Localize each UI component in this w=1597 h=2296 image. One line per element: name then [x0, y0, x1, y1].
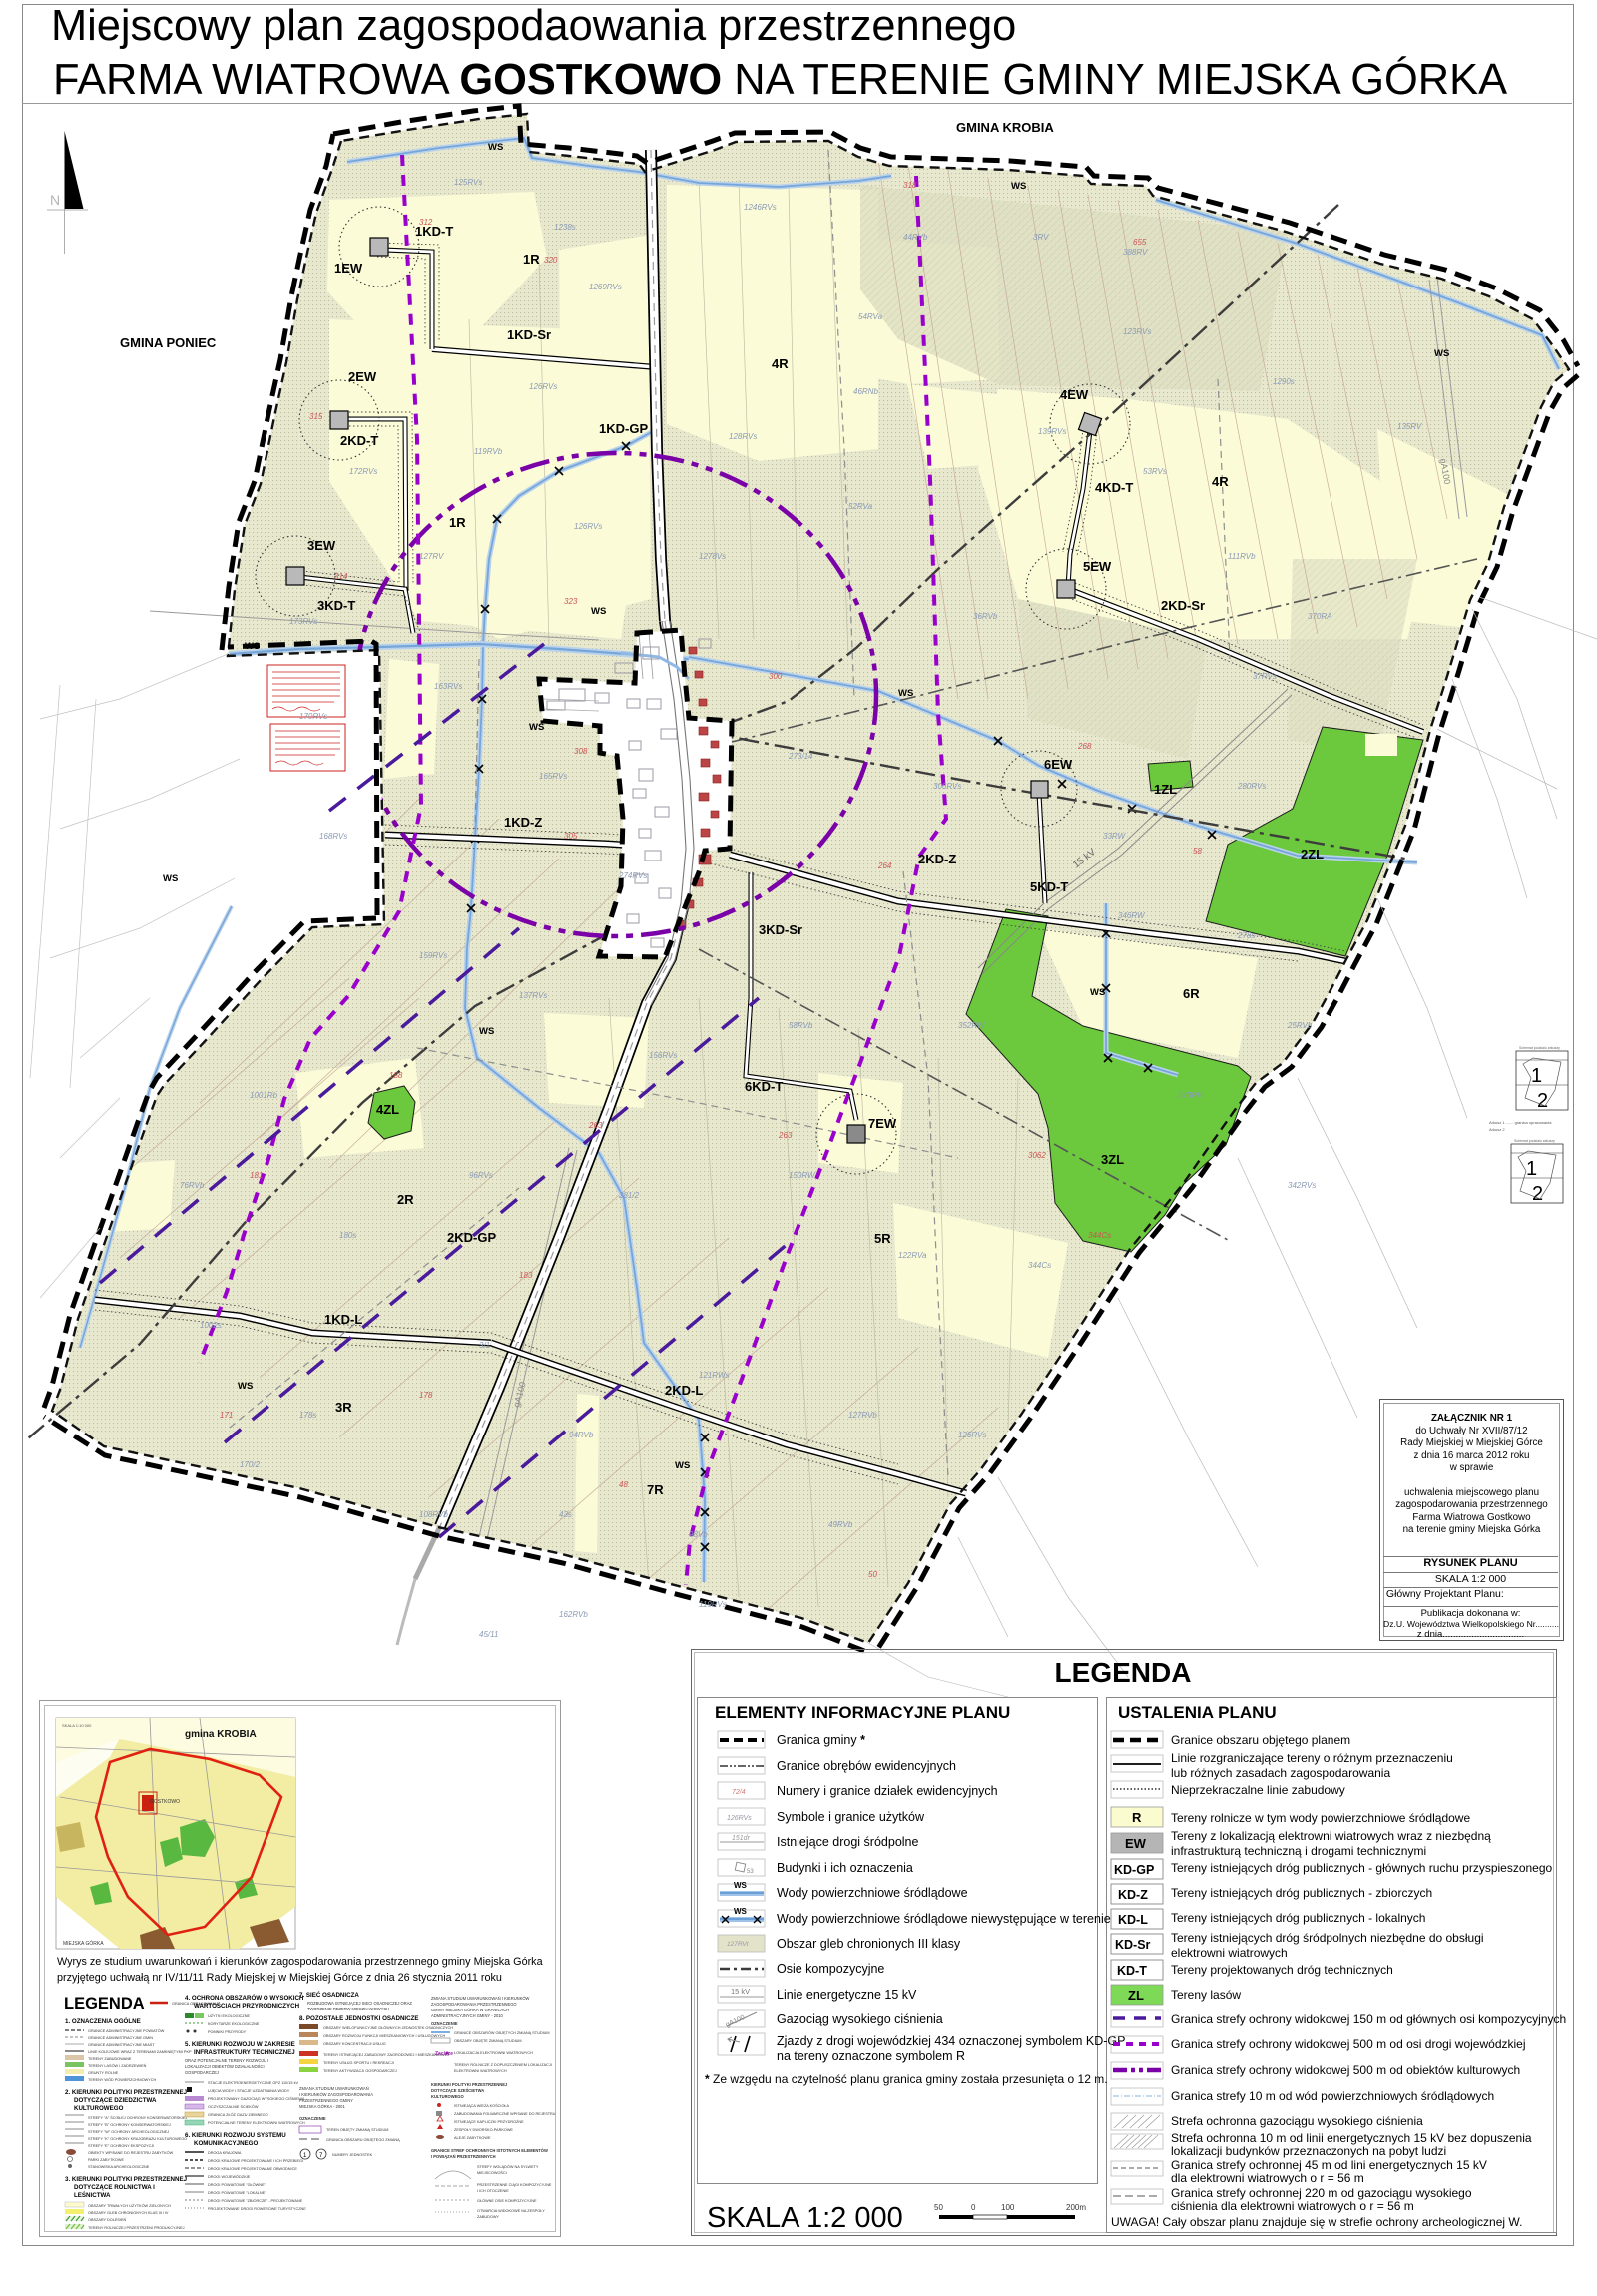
svg-text:PRZESTRZENNEGO GMINY: PRZESTRZENNEGO GMINY [299, 2098, 353, 2103]
svg-text:STREFY WGLĄDÓW NA SYLWETY: STREFY WGLĄDÓW NA SYLWETY [477, 2164, 539, 2169]
svg-text:DROGI WOJEWÓDZKIE: DROGI WOJEWÓDZKIE [208, 2174, 251, 2179]
svg-text:4. OCHRONA OBSZARÓW O WYSOKICH: 4. OCHRONA OBSZARÓW O WYSOKICH [185, 1994, 304, 2002]
svg-text:1. OZNACZENIA OGÓLNE: 1. OZNACZENIA OGÓLNE [65, 2017, 141, 2025]
svg-text:OBSZARY OBJĘTE ZMIANĄ STUDIUM: OBSZARY OBJĘTE ZMIANĄ STUDIUM [454, 2039, 522, 2043]
svg-text:I POWIĄZAŃ PRZESTRZENNYCH: I POWIĄZAŃ PRZESTRZENNYCH [431, 2154, 496, 2159]
svg-text:STREFY "W" OCHRONY ARCHEOLOGIC: STREFY "W" OCHRONY ARCHEOLOGICZNEJ [88, 2130, 169, 2134]
svg-text:OBIEKTY WPISANE DO REJESTRU ZA: OBIEKTY WPISANE DO REJESTRU ZABYTKÓW [88, 2150, 174, 2155]
svg-text:5. KIERUNKI ROZWOJU W ZAKRESIE: 5. KIERUNKI ROZWOJU W ZAKRESIE [185, 2041, 295, 2048]
svg-text:GRANICE STREF OCHRONNYCH ISTOT: GRANICE STREF OCHRONNYCH ISTOTNYCH ELEME… [431, 2148, 548, 2153]
svg-text:ZESPOŁY DWORSKO-PARKOWE: ZESPOŁY DWORSKO-PARKOWE [454, 2128, 513, 2132]
svg-text:OBSZARY KONCENTRACJI USŁUG: OBSZARY KONCENTRACJI USŁUG [323, 2042, 386, 2046]
svg-text:ISTNIEJĄCA WIEŻA KOŚCIOŁA: ISTNIEJĄCA WIEŻA KOŚCIOŁA [454, 2103, 510, 2108]
svg-text:POMNIKI PRZYRODY: POMNIKI PRZYRODY [208, 2030, 247, 2034]
svg-text:ADMINISTRACYJNYCH GMINY - 2010: ADMINISTRACYJNYCH GMINY - 2010 [431, 2013, 504, 2018]
svg-text:WARTOŚCIACH PRZYRODNICZYCH: WARTOŚCIACH PRZYRODNICZYCH [194, 2003, 300, 2009]
svg-text:GŁÓWNE OSIE KOMPOZYCYJNE: GŁÓWNE OSIE KOMPOZYCYJNE [477, 2198, 537, 2203]
svg-text:LINIE KOLEJOWE WRAZ Z TERENAMI: LINIE KOLEJOWE WRAZ Z TERENAMI ZAMKNIĘTY… [88, 2050, 192, 2054]
svg-text:I KIERUNKÓW ZAGOSPODAROWANIA: I KIERUNKÓW ZAGOSPODAROWANIA [299, 2092, 373, 2097]
svg-text:INFRASTRUKTURY TECHNICZNEJ: INFRASTRUKTURY TECHNICZNEJ [194, 2049, 295, 2056]
svg-text:NUMERY JEDNOSTEK: NUMERY JEDNOSTEK [332, 2153, 373, 2157]
svg-text:TERENY LASÓW I ZADRZEWIEŃ: TERENY LASÓW I ZADRZEWIEŃ [88, 2063, 147, 2068]
svg-text:ZMIANA STUDIUM UWARUNKOWAŃ I K: ZMIANA STUDIUM UWARUNKOWAŃ I KIERUNKÓW [431, 1996, 530, 2001]
svg-text:ZAGOSPODAROWANIA PRZESTRZENNEG: ZAGOSPODAROWANIA PRZESTRZENNEGO [431, 2002, 517, 2007]
svg-text:ZABUDOWY: ZABUDOWY [477, 2215, 499, 2219]
svg-text:DROGI POWIATOWE "LOKALNE": DROGI POWIATOWE "LOKALNE" [208, 2191, 266, 2195]
svg-text:KORYTARZE EKOLOGICZNE: KORYTARZE EKOLOGICZNE [208, 2022, 260, 2026]
svg-text:GOSPODARCZEJ: GOSPODARCZEJ [185, 2070, 219, 2075]
svg-text:OBSZARY DOLESIEŃ: OBSZARY DOLESIEŃ [88, 2218, 127, 2222]
svg-text:TERENY ZABUDOWANE: TERENY ZABUDOWANE [88, 2057, 132, 2061]
svg-text:MIEJSCOWOŚCI: MIEJSCOWOŚCI [477, 2170, 507, 2175]
svg-text:PARKI ZABYTKOWE: PARKI ZABYTKOWE [88, 2158, 124, 2162]
svg-text:STREFY "B" OCHRONY KONSERWATOR: STREFY "B" OCHRONY KONSERWATORSKIEJ [88, 2123, 171, 2127]
svg-text:OTWARCIA WIDOKOWE NA ZESPOŁY: OTWARCIA WIDOKOWE NA ZESPOŁY [477, 2209, 545, 2213]
svg-text:TERENY ROLNICZEJ PRZESTRZENI P: TERENY ROLNICZEJ PRZESTRZENI PRODUKCYJNE… [88, 2226, 185, 2230]
svg-text:TERENY ISTNIEJĄCEJ ZABUDOWY ZA: TERENY ISTNIEJĄCEJ ZABUDOWY ZAGRODOWEJ I… [323, 2053, 449, 2057]
svg-text:DOTYCZĄCE DZIEDZICTWA: DOTYCZĄCE DZIEDZICTWA [74, 2097, 157, 2104]
svg-text:GRANICA ZŁÓŻ GAZU ZIEMNEGO: GRANICA ZŁÓŻ GAZU ZIEMNEGO [208, 2112, 268, 2117]
svg-text:TWORZENIE REZERW MIESZKANIOWYC: TWORZENIE REZERW MIESZKANIOWYCH [307, 2007, 389, 2011]
svg-text:OZNACZENIE: OZNACZENIE [431, 2021, 458, 2026]
svg-text:POTENCJALNE TERENY ELEKTROWNI: POTENCJALNE TERENY ELEKTROWNI WIATROWYCH [208, 2121, 305, 2125]
svg-text:STANOWISKA ARCHEOLOGICZNE: STANOWISKA ARCHEOLOGICZNE [88, 2165, 150, 2169]
svg-text:ZABUDOWANIA FOLWARCZNE WPISANE: ZABUDOWANIA FOLWARCZNE WPISANE DO REJEST… [454, 2112, 556, 2116]
svg-text:OCZYSZCZALNIE ŚCIEKÓW: OCZYSZCZALNIE ŚCIEKÓW [208, 2104, 259, 2109]
svg-text:TERENY WÓD POWIERZCHNIOWYCH: TERENY WÓD POWIERZCHNIOWYCH [88, 2077, 157, 2082]
svg-text:OZNACZENIE: OZNACZENIE [299, 2116, 326, 2121]
svg-text:7. SIEĆ OSADNICZA: 7. SIEĆ OSADNICZA [299, 1991, 359, 1999]
svg-text:7: 7 [319, 2153, 323, 2159]
svg-text:UJĘCIA WODY I STACJE UZDATNIAN: UJĘCIA WODY I STACJE UZDATNIANIA WODY [208, 2089, 290, 2093]
svg-text:LOKALIZACJA ELEKTROWNI WIATROW: LOKALIZACJA ELEKTROWNI WIATROWYCH [454, 2051, 533, 2055]
svg-text:GRUNTY ROLNE: GRUNTY ROLNE [88, 2071, 119, 2075]
svg-text:ORAZ POTENCJALNE TERENY ROZWOJ: ORAZ POTENCJALNE TERENY ROZWOJU I [185, 2058, 268, 2063]
svg-text:MIEJSKA GÓRKA - 2001: MIEJSKA GÓRKA - 2001 [299, 2104, 345, 2109]
svg-text:LOKALIZACJI OBIEKTÓW DZIAŁALNO: LOKALIZACJI OBIEKTÓW DZIAŁALNOŚCI [185, 2064, 265, 2069]
svg-text:PROJEKTOWANE DROGI ROWEROWE TU: PROJEKTOWANE DROGI ROWEROWE TURYSTYCZNE [208, 2207, 306, 2211]
svg-text:3. KIERUNKI POLITYKI PRZESTRZE: 3. KIERUNKI POLITYKI PRZESTRZENNEJ [65, 2176, 188, 2183]
svg-text:GRANICE ADMINISTRACYJNE GMIN: GRANICE ADMINISTRACYJNE GMIN [88, 2036, 153, 2040]
svg-text:DROGI POWIATOWE "ZBIORCZE" - P: DROGI POWIATOWE "ZBIORCZE" - PROJEKTOWAN… [208, 2199, 303, 2203]
svg-text:PROJEKTOWANY GAZOCIĄG WYSOKIEG: PROJEKTOWANY GAZOCIĄG WYSOKIEGO CIŚNIENI… [208, 2096, 305, 2101]
svg-text:6. KIERUNKI ROZWOJU SYSTEMU: 6. KIERUNKI ROZWOJU SYSTEMU [185, 2132, 286, 2139]
svg-text:UŻYTKI EKOLOGICZNE: UŻYTKI EKOLOGICZNE [208, 2013, 250, 2018]
svg-text:GMINY MIEJSKA GÓRKA W GRANICAC: GMINY MIEJSKA GÓRKA W GRANICACH [431, 2008, 509, 2012]
svg-text:I ICH OTOCZENIE: I ICH OTOCZENIE [477, 2189, 509, 2193]
svg-text:GRANICE OBSZARÓW OBJĘTYCH ZMIA: GRANICE OBSZARÓW OBJĘTYCH ZMIANĄ STUDIUM [454, 2030, 550, 2035]
svg-text:ALEJE ZABYTKOWE: ALEJE ZABYTKOWE [454, 2136, 491, 2140]
svg-text:8. POZOSTAŁE JEDNOSTKI OSADNIC: 8. POZOSTAŁE JEDNOSTKI OSADNICZE [299, 2015, 419, 2022]
svg-text:DOTYCZĄCE ROLNICTWA I: DOTYCZĄCE ROLNICTWA I [74, 2184, 155, 2191]
svg-text:2. KIERUNKI POLITYKI PRZESTRZE: 2. KIERUNKI POLITYKI PRZESTRZENNEJ [65, 2089, 188, 2096]
svg-text:DOTYCZĄCE SZEŚCIETWA: DOTYCZĄCE SZEŚCIETWA [431, 2088, 484, 2093]
svg-text:TERENY ROLNICZE Z DOPUSZCZENIE: TERENY ROLNICZE Z DOPUSZCZENIEM LOKALIZA… [454, 2063, 552, 2067]
svg-text:ZMIANA STUDIUM UWARUNKOWAŃ: ZMIANA STUDIUM UWARUNKOWAŃ [299, 2086, 369, 2091]
svg-text:KULTUROWEGO: KULTUROWEGO [431, 2094, 464, 2099]
svg-text:DROGA KRAJOWA: DROGA KRAJOWA [208, 2151, 242, 2155]
svg-text:LEŚNICTWA: LEŚNICTWA [74, 2192, 111, 2199]
svg-text:KOMUNIKACYJNEGO: KOMUNIKACYJNEGO [194, 2140, 258, 2147]
svg-text:TERENY USŁUG SPORTU I REKREACJ: TERENY USŁUG SPORTU I REKREACJI [323, 2061, 394, 2065]
svg-text:OBSZARY ROZWOJU FUNKCJI MIESZK: OBSZARY ROZWOJU FUNKCJI MIESZKANIOWYCH I… [323, 2034, 445, 2038]
svg-text:DROGI POWIATOWE "GŁÓWNE": DROGI POWIATOWE "GŁÓWNE" [208, 2182, 266, 2187]
svg-text:TEREN OBJĘTY ZMIANĄ STUDIUM: TEREN OBJĘTY ZMIANĄ STUDIUM [326, 2128, 388, 2132]
svg-text:ELEKTROWNI WIATROWYCH: ELEKTROWNI WIATROWYCH [454, 2069, 507, 2073]
svg-text:KIERUNKI POLITYKI PRZESTRZENNE: KIERUNKI POLITYKI PRZESTRZENNEJ [431, 2082, 507, 2087]
svg-text:STACJE ELEKTROENERGETYCZNE GPZ: STACJE ELEKTROENERGETYCZNE GPZ 110/15 kV [208, 2081, 298, 2085]
svg-text:GRANICA OBSZARU OBJĘTEGO ZMIAN: GRANICA OBSZARU OBJĘTEGO ZMIANĄ [326, 2138, 400, 2142]
svg-text:1: 1 [303, 2153, 307, 2159]
svg-text:STREFY "K" OCHRONY KRAJOBRAZU: STREFY "K" OCHRONY KRAJOBRAZU KULTUROWEG… [88, 2137, 187, 2141]
svg-text:ISTNIEJĄCE KAPLICZKI PRZYDROŻN: ISTNIEJĄCE KAPLICZKI PRZYDROŻNE [454, 2119, 524, 2124]
svg-text:GRANICE ADMINISTRACYJNE POWIAT: GRANICE ADMINISTRACYJNE POWIATÓW [88, 2028, 165, 2033]
svg-text:DROGI KRAJOWE PROJEKTOWANE OBW: DROGI KRAJOWE PROJEKTOWANE OBWODNICE [208, 2167, 297, 2171]
svg-text:TERENY AKTYWIZACJI GOSPODARCZE: TERENY AKTYWIZACJI GOSPODARCZEJ [323, 2069, 397, 2073]
svg-text:ROZBUDOWA ISTNIEJĄCEJ SIECI OS: ROZBUDOWA ISTNIEJĄCEJ SIECI OSADNICZEJ O… [307, 2001, 412, 2006]
svg-text:DROGI KRAJOWE PROJEKTOWANE I I: DROGI KRAJOWE PROJEKTOWANE I ICH PRZEBIE… [208, 2159, 303, 2163]
svg-text:OBSZARY GLEB CHRONIONYCH KLAS: OBSZARY GLEB CHRONIONYCH KLAS III i IV [88, 2211, 169, 2215]
svg-text:GRANICE ADMINISTRACYJNE MIAST: GRANICE ADMINISTRACYJNE MIAST [88, 2043, 155, 2047]
svg-text:STREFY "A" ŚCISŁEJ OCHRONY KON: STREFY "A" ŚCISŁEJ OCHRONY KONSERWATORSK… [88, 2115, 187, 2120]
svg-text:Zacisze: Zacisze [435, 2051, 453, 2057]
svg-text:PRZESTRZENNE CIĄGI KOMPOZYCYJN: PRZESTRZENNE CIĄGI KOMPOZYCYJNE [477, 2183, 552, 2187]
svg-text:STREFY "E" OCHRONY EKSPOZYCJI: STREFY "E" OCHRONY EKSPOZYCJI [88, 2144, 154, 2148]
svg-text:KULTUROWEGO: KULTUROWEGO [74, 2105, 124, 2112]
svg-text:OBSZARY TRWAŁYCH UŻYTKÓW ZIELO: OBSZARY TRWAŁYCH UŻYTKÓW ZIELONYCH [88, 2203, 171, 2208]
